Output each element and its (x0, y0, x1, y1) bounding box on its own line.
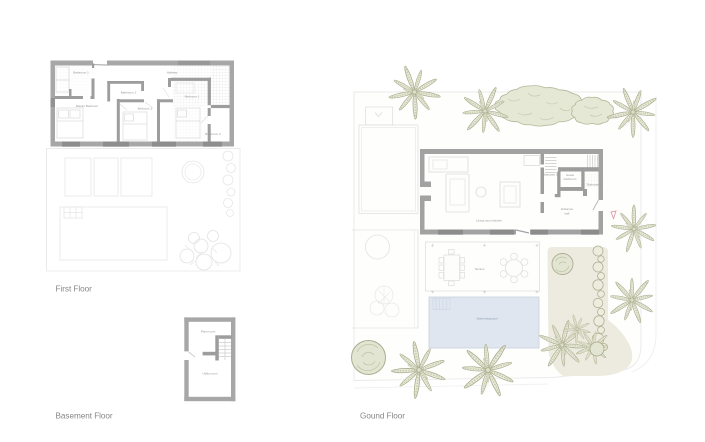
svg-text:Terrace: Terrace (474, 267, 484, 271)
svg-text:Master Bedroom: Master Bedroom (76, 104, 99, 108)
svg-text:Bathroom 2: Bathroom 2 (121, 91, 137, 95)
svg-text:Plant room: Plant room (201, 330, 216, 334)
svg-text:Living room kitchen: Living room kitchen (476, 219, 502, 223)
svg-text:Utility room: Utility room (202, 372, 218, 376)
svg-text:Bedroom 2: Bedroom 2 (138, 107, 153, 111)
svg-text:Hallway: Hallway (167, 71, 178, 75)
svg-text:Staircase 1: Staircase 1 (586, 183, 601, 187)
svg-text:Staircase 2: Staircase 2 (542, 173, 557, 177)
svg-text:Bathroom 1: Bathroom 1 (73, 71, 89, 75)
svg-text:Basement Floor: Basement Floor (56, 411, 113, 420)
svg-text:bathroom: bathroom (564, 177, 577, 181)
svg-text:First Floor: First Floor (56, 284, 93, 293)
svg-text:Bathroom 3: Bathroom 3 (205, 132, 221, 136)
svg-text:hall: hall (565, 212, 570, 216)
svg-text:Entrance: Entrance (561, 207, 573, 211)
svg-text:Gound Floor: Gound Floor (360, 412, 405, 421)
svg-text:Swimming pool: Swimming pool (477, 317, 498, 321)
svg-text:Bedroom 1: Bedroom 1 (185, 95, 200, 99)
